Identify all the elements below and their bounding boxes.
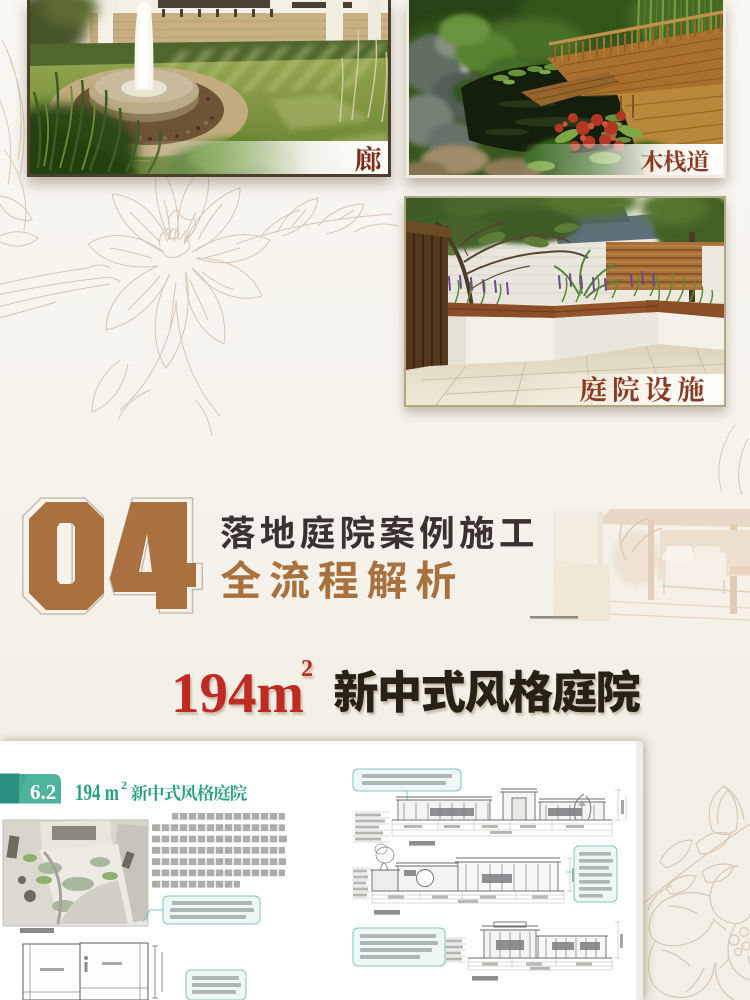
svg-text:6.2: 6.2 bbox=[30, 780, 56, 804]
svg-text:194 m: 194 m bbox=[75, 780, 119, 805]
svg-text:2: 2 bbox=[301, 656, 313, 682]
svg-text:194m: 194m bbox=[171, 662, 304, 725]
svg-text:2: 2 bbox=[121, 778, 127, 792]
